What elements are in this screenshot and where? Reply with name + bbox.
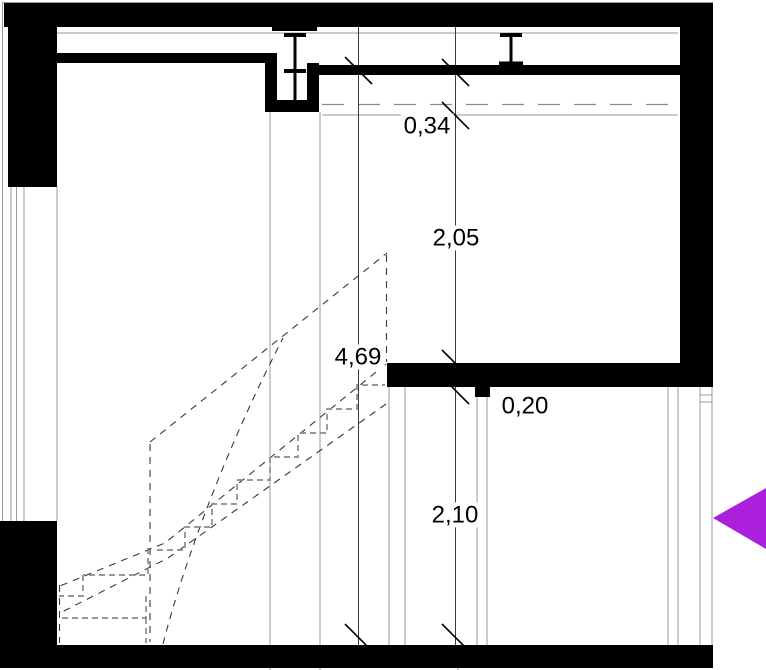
sheet-border bbox=[3, 3, 714, 669]
stair-outline bbox=[60, 253, 388, 644]
wall-right bbox=[680, 3, 713, 387]
i-beam-icon bbox=[284, 33, 306, 100]
dimension-label-2-10: 2,10 bbox=[429, 502, 482, 527]
wall-inner-upper-left bbox=[57, 53, 277, 63]
walls bbox=[0, 3, 713, 668]
floor-section-svg bbox=[0, 0, 766, 670]
wall-recess-lintel bbox=[272, 27, 317, 31]
section-arrow bbox=[713, 488, 766, 549]
section-drawing-canvas: 0,34 2,05 4,69 0,20 2,10 bbox=[0, 0, 766, 670]
wall-top-slab bbox=[4, 3, 713, 27]
dimension-label-0-34: 0,34 bbox=[401, 113, 454, 138]
dimension-label-4-69: 4,69 bbox=[332, 344, 385, 369]
wall-column-stub bbox=[475, 387, 490, 397]
wall-bottom-slab bbox=[0, 645, 713, 668]
wall-inner-upper-right bbox=[307, 65, 680, 75]
wall-mid-slab bbox=[387, 363, 713, 387]
stair-steps bbox=[59, 385, 385, 643]
wall-left-upper bbox=[8, 3, 57, 187]
wall-left-lower-block bbox=[0, 521, 57, 645]
dimension-label-2-05: 2,05 bbox=[430, 225, 483, 250]
dimension-label-0-20: 0,20 bbox=[499, 393, 552, 418]
